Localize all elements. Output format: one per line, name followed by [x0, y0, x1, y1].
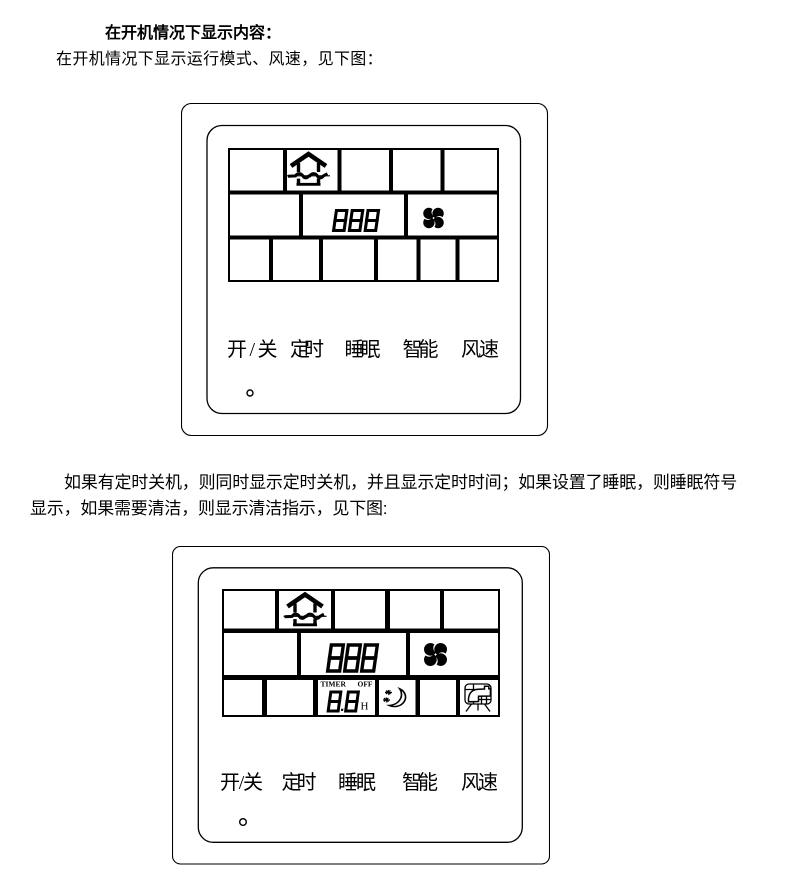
svg-text:风速: 风速: [461, 771, 498, 794]
svg-text:定时: 定时: [282, 771, 317, 794]
svg-text:开/关: 开/关: [227, 338, 278, 361]
svg-text:H: H: [361, 701, 369, 713]
svg-text:智能: 智能: [402, 771, 438, 794]
svg-text:智能: 智能: [403, 338, 439, 361]
svg-text:睡眠: 睡眠: [345, 338, 381, 361]
svg-text:TIMER: TIMER: [321, 680, 347, 689]
svg-text:开/关: 开/关: [220, 771, 263, 794]
svg-text:风速: 风速: [461, 338, 499, 361]
svg-text:睡眠: 睡眠: [338, 771, 376, 794]
svg-text:OFF: OFF: [358, 680, 373, 689]
svg-text:定时: 定时: [290, 338, 324, 361]
